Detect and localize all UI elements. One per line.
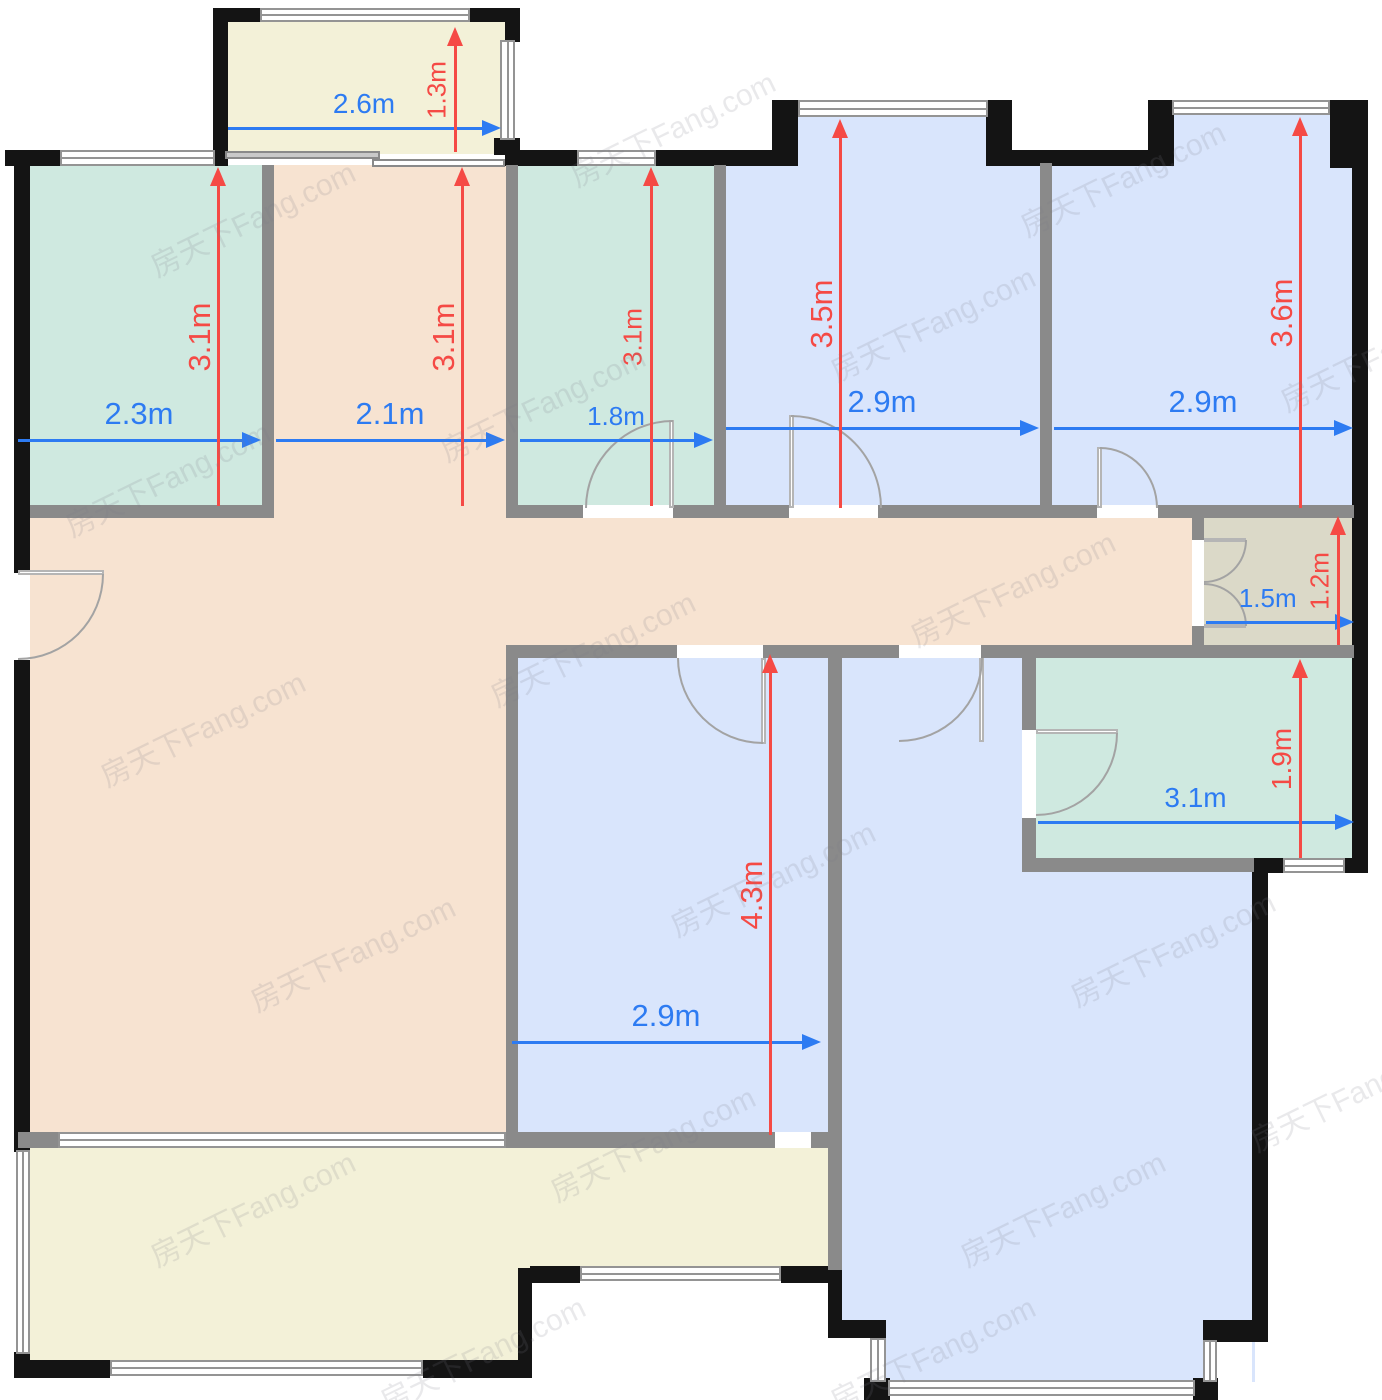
partition	[1022, 658, 1036, 730]
room-living	[30, 518, 506, 1132]
window	[577, 150, 656, 166]
wall	[986, 100, 1012, 166]
window	[110, 1360, 423, 1376]
partition	[30, 505, 274, 518]
dimension-line	[454, 40, 457, 152]
window	[1203, 1340, 1217, 1382]
window	[798, 100, 988, 117]
dimension-label: 2.9m	[632, 998, 701, 1034]
slider-panel	[225, 151, 380, 159]
dimension-label: 1.9m	[1266, 728, 1298, 790]
partition	[878, 505, 1040, 518]
partition	[763, 645, 899, 658]
floor-plan: 2.6m 1.3m 2.3m 3.1m 2.1m 3.1m 1.8m 3.1m …	[0, 0, 1382, 1400]
slider-panel	[372, 159, 505, 167]
partition	[18, 1132, 60, 1148]
arrow-right-icon	[242, 432, 261, 448]
door-gap	[899, 645, 981, 658]
dimension-line	[228, 127, 488, 130]
dimension-label: 3.6m	[1264, 279, 1300, 348]
wall	[213, 8, 228, 166]
partition	[1022, 818, 1036, 858]
partition	[1192, 518, 1204, 540]
dimension-line	[1054, 427, 1340, 430]
arrow-right-icon	[1020, 420, 1039, 436]
wall	[530, 1266, 580, 1283]
arrow-up-icon	[1292, 117, 1308, 136]
wall	[14, 150, 30, 573]
wall	[772, 100, 798, 166]
wall	[1010, 150, 1150, 166]
dimension-label: 2.1m	[356, 396, 425, 432]
arrow-right-icon	[694, 432, 713, 448]
door-gap	[1192, 540, 1204, 626]
arrow-right-icon	[1335, 814, 1354, 830]
partition	[1022, 858, 1254, 872]
partition	[1040, 505, 1097, 518]
arrow-up-icon	[447, 27, 463, 46]
arrow-up-icon	[643, 167, 659, 186]
room-corridor	[506, 518, 1192, 645]
partition	[1158, 505, 1354, 518]
dimension-label: 3.5m	[804, 280, 840, 349]
window	[1172, 100, 1330, 115]
wall	[1343, 858, 1368, 873]
wall	[423, 1360, 532, 1378]
partition	[1022, 645, 1354, 658]
wall	[1148, 100, 1174, 166]
balcony-slider	[58, 1132, 506, 1148]
arrow-right-icon	[1334, 420, 1353, 436]
partition	[673, 505, 789, 518]
partition	[262, 165, 274, 505]
dimension-label: 2.9m	[1169, 384, 1238, 420]
arrow-up-icon	[1292, 659, 1308, 678]
dimension-label: 1.8m	[587, 401, 645, 432]
partition	[506, 645, 677, 658]
wall	[1352, 100, 1368, 872]
partition	[506, 165, 518, 505]
arrow-right-icon	[486, 432, 505, 448]
room-balcony-bottom	[30, 1148, 842, 1268]
arrow-up-icon	[832, 119, 848, 138]
room-bedroom-1	[726, 165, 1040, 508]
dimension-label: 1.5m	[1239, 583, 1297, 614]
window	[1283, 858, 1345, 873]
window	[260, 8, 470, 22]
partition	[811, 1132, 842, 1148]
window	[870, 1338, 886, 1382]
dimension-label: 3.1m	[182, 303, 218, 372]
partition	[1040, 163, 1052, 505]
partition	[506, 1132, 775, 1148]
wall	[505, 8, 520, 42]
partition	[828, 658, 842, 1270]
window	[500, 40, 515, 140]
wall	[14, 660, 30, 1152]
door-gap	[775, 1132, 811, 1148]
dimension-line	[1206, 621, 1341, 624]
arrow-up-icon	[210, 167, 226, 186]
wall	[505, 150, 577, 166]
wall	[828, 1320, 886, 1338]
dimension-label: 4.3m	[734, 861, 770, 930]
dimension-label: 2.9m	[848, 384, 917, 420]
arrow-right-icon	[482, 120, 501, 136]
room-bedroom-1-bay	[796, 117, 988, 167]
partition	[506, 645, 518, 1148]
partition	[506, 505, 583, 518]
window	[580, 1266, 781, 1281]
room-bedroom-2-bay	[1172, 115, 1332, 167]
dimension-line	[650, 180, 653, 506]
dimension-label: 1.2m	[1305, 552, 1336, 610]
window	[888, 1380, 1195, 1396]
dimension-label: 1.3m	[422, 61, 453, 119]
dimension-line	[726, 427, 1026, 430]
dimension-label: 3.1m	[426, 303, 462, 372]
wall	[1252, 858, 1268, 1323]
dimension-line	[18, 439, 248, 442]
dimension-line	[1038, 821, 1341, 824]
arrow-right-icon	[802, 1034, 821, 1050]
room-bedroom-3	[518, 658, 828, 1132]
partition	[981, 645, 1022, 658]
door-gap	[1022, 730, 1036, 818]
dimension-label: 2.3m	[105, 396, 174, 432]
room-balcony-bottom-left	[30, 1268, 518, 1362]
outside-notch-right	[1216, 1342, 1252, 1400]
arrow-up-icon	[1330, 516, 1346, 535]
wall	[14, 1352, 30, 1378]
room-top-left	[30, 165, 262, 508]
dimension-line	[520, 439, 700, 442]
arrow-up-icon	[454, 167, 470, 186]
window	[60, 150, 215, 166]
door-gap	[677, 645, 763, 658]
dimension-label: 3.1m	[618, 308, 649, 366]
wall	[1203, 1320, 1268, 1342]
arrow-up-icon	[762, 654, 778, 673]
dimension-label: 3.1m	[1164, 782, 1226, 814]
wall	[213, 8, 263, 22]
dimension-line	[1337, 529, 1340, 645]
window	[16, 1150, 30, 1354]
partition	[714, 165, 726, 505]
room-kitchen-column	[274, 165, 506, 518]
partition	[1192, 626, 1204, 645]
dimension-line	[512, 1041, 808, 1044]
dimension-label: 2.6m	[333, 88, 395, 120]
dimension-line	[1299, 672, 1302, 858]
